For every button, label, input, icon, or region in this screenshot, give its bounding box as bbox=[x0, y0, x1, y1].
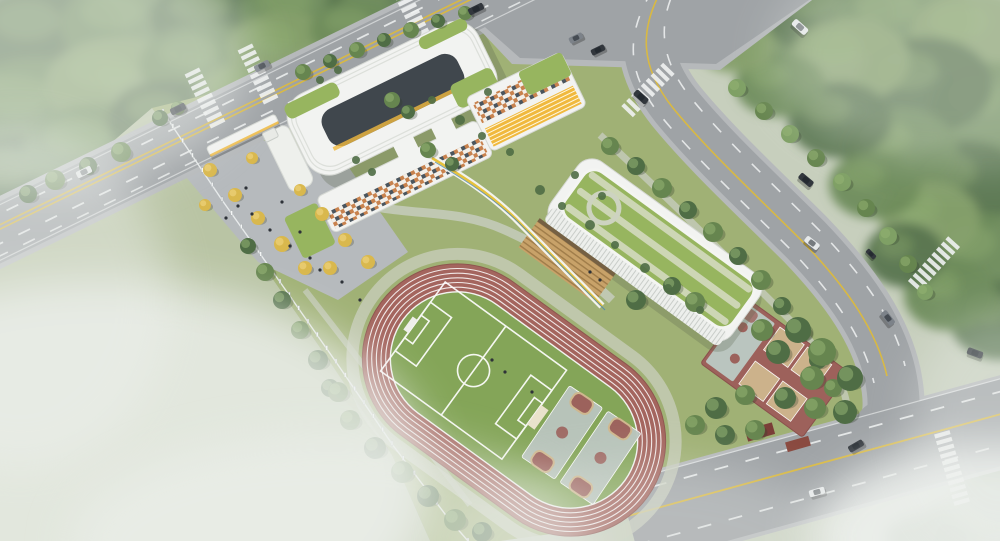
tree-highlight bbox=[858, 200, 868, 210]
fence-post bbox=[240, 224, 242, 229]
tree-highlight bbox=[200, 200, 206, 206]
person bbox=[598, 278, 601, 281]
tree-highlight bbox=[768, 342, 781, 355]
roof-tree bbox=[664, 284, 672, 292]
tree-highlight bbox=[295, 185, 301, 191]
roof-tree bbox=[334, 66, 342, 74]
tree-highlight bbox=[774, 298, 784, 308]
tree-highlight bbox=[299, 262, 306, 269]
person bbox=[280, 200, 283, 203]
roof-tree bbox=[585, 220, 595, 230]
roof-tree bbox=[696, 306, 704, 314]
scene-canvas bbox=[0, 0, 1000, 541]
tree-highlight bbox=[378, 34, 386, 42]
tree-highlight bbox=[316, 208, 323, 215]
roof-tree bbox=[506, 148, 514, 156]
tree-highlight bbox=[257, 264, 267, 274]
person bbox=[588, 270, 591, 273]
person bbox=[318, 268, 321, 271]
tree-highlight bbox=[339, 234, 346, 241]
person bbox=[244, 186, 247, 189]
tree-highlight bbox=[654, 180, 665, 191]
tree-highlight bbox=[432, 15, 440, 23]
tree-highlight bbox=[729, 80, 739, 90]
tree-highlight bbox=[835, 402, 848, 415]
tree-highlight bbox=[753, 321, 765, 333]
tree-highlight bbox=[900, 256, 910, 266]
roof-tree bbox=[352, 156, 360, 164]
roof-tree bbox=[598, 192, 606, 200]
tree-highlight bbox=[459, 7, 467, 15]
roof-tree bbox=[640, 263, 650, 273]
tree-highlight bbox=[204, 164, 211, 171]
tree-highlight bbox=[385, 93, 394, 102]
person bbox=[530, 390, 533, 393]
tree-highlight bbox=[730, 248, 740, 258]
aerial-campus-render bbox=[0, 0, 1000, 541]
tree-highlight bbox=[276, 238, 284, 246]
roof-tree bbox=[478, 132, 486, 140]
fence-post bbox=[201, 168, 203, 173]
person bbox=[298, 230, 301, 233]
tree-highlight bbox=[324, 55, 332, 63]
tree-highlight bbox=[687, 294, 698, 305]
fence-post bbox=[260, 252, 262, 257]
fence-post bbox=[279, 279, 281, 284]
tree-highlight bbox=[802, 368, 815, 381]
person bbox=[490, 358, 493, 361]
person bbox=[224, 216, 227, 219]
tree-highlight bbox=[296, 65, 305, 74]
roof-tree bbox=[428, 96, 436, 104]
tree-highlight bbox=[602, 138, 612, 148]
person bbox=[308, 256, 311, 259]
fence-post bbox=[221, 197, 223, 202]
roof-tree bbox=[455, 115, 465, 125]
person bbox=[268, 228, 271, 231]
tree-highlight bbox=[756, 103, 766, 113]
tree-highlight bbox=[628, 158, 638, 168]
tree-highlight bbox=[241, 239, 250, 248]
tree-highlight bbox=[446, 158, 454, 166]
tree-highlight bbox=[747, 422, 758, 433]
tree-highlight bbox=[918, 285, 927, 294]
tree-highlight bbox=[247, 153, 253, 159]
tree-highlight bbox=[825, 380, 835, 390]
tree-highlight bbox=[808, 150, 818, 160]
tree-highlight bbox=[229, 189, 236, 196]
tree-highlight bbox=[628, 292, 639, 303]
roof-tree bbox=[611, 241, 619, 249]
person bbox=[358, 298, 361, 301]
fence-post bbox=[231, 211, 233, 216]
tree-highlight bbox=[737, 387, 748, 398]
roof-tree bbox=[316, 76, 324, 84]
tree-highlight bbox=[880, 228, 890, 238]
person bbox=[236, 204, 239, 207]
person bbox=[340, 280, 343, 283]
tree-highlight bbox=[404, 23, 413, 32]
person bbox=[288, 244, 291, 247]
tree-highlight bbox=[402, 106, 410, 114]
tree-highlight bbox=[839, 367, 853, 381]
fence-post bbox=[298, 306, 300, 311]
tree-highlight bbox=[324, 262, 331, 269]
tree-highlight bbox=[707, 399, 719, 411]
tree-highlight bbox=[705, 224, 716, 235]
tree-highlight bbox=[776, 389, 788, 401]
tree-highlight bbox=[421, 143, 430, 152]
tree-highlight bbox=[717, 427, 728, 438]
tree-highlight bbox=[806, 399, 818, 411]
tree-highlight bbox=[350, 43, 359, 52]
fence-post bbox=[211, 182, 213, 187]
roof-tree bbox=[484, 88, 492, 96]
tree-highlight bbox=[274, 292, 284, 302]
tree-highlight bbox=[834, 174, 844, 184]
roof-tree bbox=[571, 171, 579, 179]
tree-highlight bbox=[787, 319, 801, 333]
tree-highlight bbox=[680, 202, 690, 212]
tree-highlight bbox=[810, 340, 825, 355]
fence-post bbox=[307, 319, 309, 324]
person bbox=[250, 212, 253, 215]
person bbox=[503, 370, 506, 373]
tree-highlight bbox=[753, 272, 764, 283]
roof-tree bbox=[368, 168, 376, 176]
roof-tree bbox=[558, 202, 566, 210]
tree-highlight bbox=[362, 256, 369, 263]
tree-highlight bbox=[782, 126, 792, 136]
roof-tree bbox=[535, 185, 545, 195]
tree-highlight bbox=[687, 417, 698, 428]
fence-post bbox=[192, 153, 194, 158]
